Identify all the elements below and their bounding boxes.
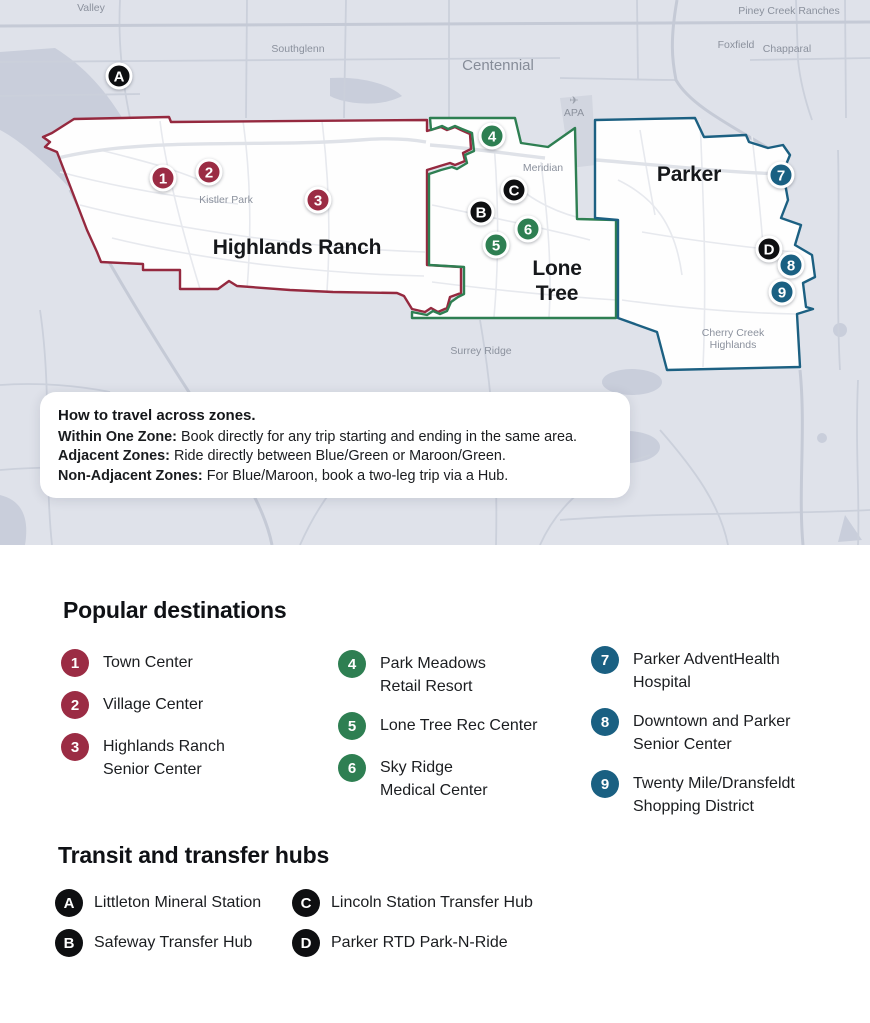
- zone-label-lone: Lone: [532, 257, 581, 280]
- info-box-title: How to travel across zones.: [58, 407, 616, 424]
- list-item-parker-adventhealth: 7 Parker AdventHealth Hospital: [591, 646, 853, 694]
- svg-text:1: 1: [159, 171, 167, 188]
- list-item-lone-tree-rec-center: 5 Lone Tree Rec Center: [338, 712, 600, 740]
- map-marker-7: 7: [769, 163, 793, 187]
- info-line-within-zone: Within One Zone: Book directly for any t…: [58, 428, 616, 447]
- map-marker-8: 8: [779, 253, 803, 277]
- svg-text:5: 5: [492, 238, 500, 255]
- hubs-column-2: C Lincoln Station Transfer Hub D Parker …: [292, 889, 592, 957]
- hub-label: Safeway Transfer Hub: [94, 929, 252, 954]
- destination-3-badge: 3: [61, 733, 89, 761]
- place-label-kistler-park: Kistler Park: [199, 194, 253, 206]
- svg-text:9: 9: [778, 285, 786, 302]
- destination-label: Lone Tree Rec Center: [380, 712, 537, 737]
- svg-text:B: B: [476, 205, 487, 222]
- list-item-lincoln-station-transfer-hub: C Lincoln Station Transfer Hub: [292, 889, 592, 917]
- zone-label-tree: Tree: [536, 282, 578, 305]
- plane-icon: ✈: [569, 95, 578, 107]
- list-item-town-center: 1 Town Center: [61, 649, 323, 677]
- place-label-valley: Valley: [77, 2, 106, 14]
- info-line-text: For Blue/Maroon, book a two-leg trip via…: [203, 468, 509, 484]
- list-item-downtown-parker-senior-center: 8 Downtown and Parker Senior Center: [591, 708, 853, 756]
- map-marker-3: 3: [306, 188, 330, 212]
- place-label-southglenn: Southglenn: [271, 43, 324, 55]
- map-marker-hub-a: A: [107, 64, 131, 88]
- destination-9-badge: 9: [591, 770, 619, 798]
- hub-a-badge: A: [55, 889, 83, 917]
- place-label-surrey-ridge: Surrey Ridge: [450, 345, 511, 357]
- destination-1-badge: 1: [61, 649, 89, 677]
- zone-map: Valley Southglenn Centennial Piney Creek…: [0, 0, 870, 545]
- map-marker-2: 2: [197, 160, 221, 184]
- svg-text:6: 6: [524, 222, 532, 239]
- zone-label-highlands-ranch: Highlands Ranch: [213, 236, 382, 259]
- destination-4-badge: 4: [338, 650, 366, 678]
- place-label-foxfield: Foxfield: [718, 39, 755, 51]
- svg-text:D: D: [764, 242, 775, 259]
- destination-2-badge: 2: [61, 691, 89, 719]
- svg-text:4: 4: [488, 129, 497, 146]
- destination-label: Park Meadows Retail Resort: [380, 650, 486, 698]
- destinations-column-1: 1 Town Center 2 Village Center 3 Highlan…: [61, 649, 323, 781]
- svg-text:C: C: [509, 183, 520, 200]
- map-marker-6: 6: [516, 217, 540, 241]
- destination-7-badge: 7: [591, 646, 619, 674]
- destination-label: Village Center: [103, 691, 203, 716]
- svg-text:A: A: [114, 69, 125, 86]
- popular-destinations-heading: Popular destinations: [63, 596, 286, 624]
- svg-text:8: 8: [787, 258, 795, 275]
- place-label-cherry-creek: Cherry Creek: [702, 327, 765, 339]
- airport-code-label: APA: [564, 107, 584, 119]
- list-item-sky-ridge-medical-center: 6 Sky Ridge Medical Center: [338, 754, 600, 802]
- hub-label: Littleton Mineral Station: [94, 889, 261, 914]
- place-label-meridian: Meridian: [523, 162, 563, 174]
- destination-label: Sky Ridge Medical Center: [380, 754, 488, 802]
- destination-label: Twenty Mile/Dransfeldt Shopping District: [633, 770, 795, 818]
- info-line-bold: Non-Adjacent Zones:: [58, 468, 203, 484]
- info-line-text: Book directly for any trip starting and …: [177, 429, 577, 445]
- map-marker-9: 9: [770, 280, 794, 304]
- destination-label: Town Center: [103, 649, 193, 674]
- list-item-parker-rtd-park-n-ride: D Parker RTD Park-N-Ride: [292, 929, 592, 957]
- info-line-bold: Adjacent Zones:: [58, 448, 170, 464]
- place-label-highlands: Highlands: [710, 339, 757, 351]
- destination-label: Parker AdventHealth Hospital: [633, 646, 780, 694]
- map-marker-hub-b: B: [469, 200, 493, 224]
- map-marker-1: 1: [151, 166, 175, 190]
- map-marker-hub-c: C: [502, 178, 526, 202]
- hub-label: Lincoln Station Transfer Hub: [331, 889, 533, 914]
- hub-b-badge: B: [55, 929, 83, 957]
- hub-d-badge: D: [292, 929, 320, 957]
- place-label-centennial: Centennial: [462, 57, 534, 74]
- map-marker-4: 4: [480, 124, 504, 148]
- destination-6-badge: 6: [338, 754, 366, 782]
- info-line-adjacent-zones: Adjacent Zones: Ride directly between Bl…: [58, 447, 616, 466]
- info-line-non-adjacent-zones: Non-Adjacent Zones: For Blue/Maroon, boo…: [58, 467, 616, 486]
- zone-travel-info-box: How to travel across zones. Within One Z…: [40, 392, 630, 498]
- destinations-column-2: 4 Park Meadows Retail Resort 5 Lone Tree…: [338, 650, 600, 802]
- place-label-piney-creek-ranches: Piney Creek Ranches: [738, 5, 840, 17]
- info-line-text: Ride directly between Blue/Green or Maro…: [170, 448, 506, 464]
- destination-label: Highlands Ranch Senior Center: [103, 733, 225, 781]
- zone-label-parker: Parker: [657, 163, 721, 186]
- destination-8-badge: 8: [591, 708, 619, 736]
- svg-text:3: 3: [314, 193, 322, 210]
- place-label-chapparal: Chapparal: [763, 43, 811, 55]
- hub-c-badge: C: [292, 889, 320, 917]
- transit-hubs-heading: Transit and transfer hubs: [58, 841, 329, 869]
- destination-label: Downtown and Parker Senior Center: [633, 708, 790, 756]
- info-line-bold: Within One Zone:: [58, 429, 177, 445]
- list-item-highlands-ranch-senior-center: 3 Highlands Ranch Senior Center: [61, 733, 323, 781]
- map-marker-5: 5: [484, 233, 508, 257]
- destinations-column-3: 7 Parker AdventHealth Hospital 8 Downtow…: [591, 646, 853, 818]
- map-marker-hub-d: D: [757, 237, 781, 261]
- list-item-park-meadows: 4 Park Meadows Retail Resort: [338, 650, 600, 698]
- svg-text:2: 2: [205, 165, 213, 182]
- destination-5-badge: 5: [338, 712, 366, 740]
- svg-text:7: 7: [777, 168, 785, 185]
- list-item-village-center: 2 Village Center: [61, 691, 323, 719]
- list-item-twenty-mile-dransfeldt: 9 Twenty Mile/Dransfeldt Shopping Distri…: [591, 770, 853, 818]
- hub-label: Parker RTD Park-N-Ride: [331, 929, 508, 954]
